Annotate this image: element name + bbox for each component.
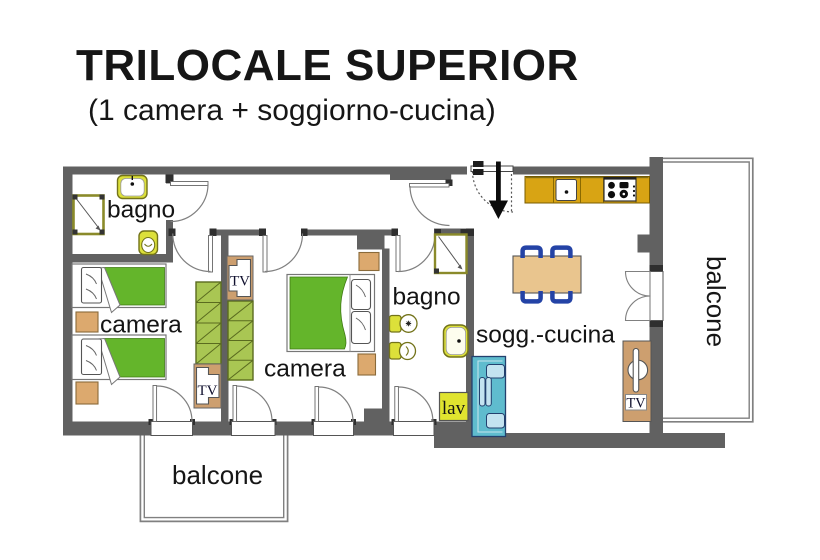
svg-text:sogg.-cucina: sogg.-cucina — [476, 322, 615, 349]
svg-text:TV: TV — [626, 396, 646, 412]
svg-text:balcone: balcone — [701, 256, 731, 347]
svg-text:camera: camera — [100, 312, 182, 339]
svg-text:TV: TV — [230, 274, 250, 290]
svg-text:bagno: bagno — [107, 197, 175, 224]
svg-text:balcone: balcone — [172, 460, 263, 490]
svg-text:(1 camera + soggiorno-cucina): (1 camera + soggiorno-cucina) — [88, 94, 496, 127]
svg-text:camera: camera — [264, 356, 346, 383]
svg-text:lav: lav — [442, 398, 466, 419]
svg-text:bagno: bagno — [393, 284, 461, 311]
svg-text:TV: TV — [198, 383, 218, 399]
svg-text:TRILOCALE SUPERIOR: TRILOCALE SUPERIOR — [76, 41, 579, 90]
